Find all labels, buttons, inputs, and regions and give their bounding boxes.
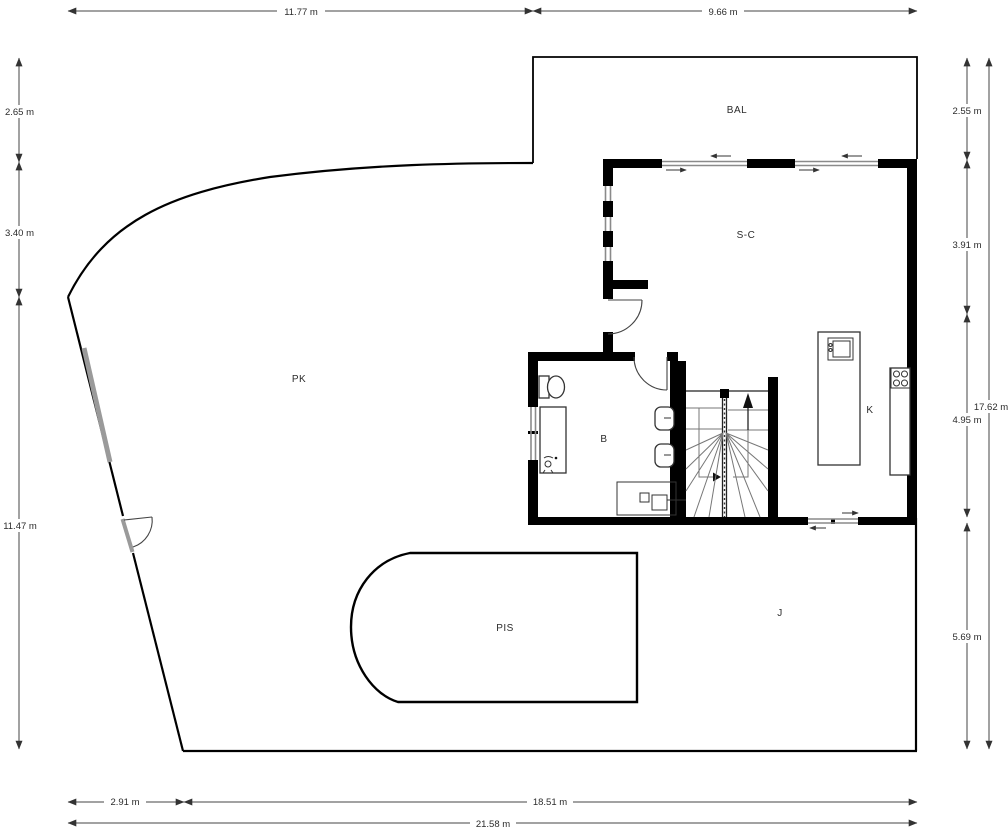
dim-label-top-right: 9.66 m: [708, 7, 737, 18]
stair-up-arrow-icon: [743, 393, 753, 408]
room-label-balcony: BAL: [727, 105, 747, 116]
plot-boundary: [68, 163, 917, 751]
dim-label-right-3: 4.95 m: [952, 415, 981, 426]
boundary-curve-top: [68, 163, 533, 297]
dim-label-bottom-total: 21.58 m: [476, 819, 510, 830]
gate-leaf-open: [124, 517, 152, 520]
shower-tray: [540, 407, 566, 473]
dim-label-left-bottom: 11.47 m: [3, 521, 37, 532]
dim-label-right-2: 3.91 m: [952, 240, 981, 251]
boundary-diagonal-lower: [133, 553, 183, 751]
dim-label-right-total: 17.62 m: [974, 402, 1008, 413]
pool-outline: [351, 553, 637, 702]
dim-label-bottom-gate: 2.91 m: [110, 797, 139, 808]
entrance-gate: [123, 517, 153, 552]
floorplan-canvas: 11.77 m 9.66 m 2.65 m 3.40 m 11.47 m 2.5…: [0, 0, 1008, 832]
doors: [608, 300, 667, 390]
kitchen-island: [818, 332, 860, 465]
room-label-bathroom: B: [600, 434, 607, 445]
gate-swing-arc: [133, 517, 152, 547]
fence-segment: [84, 348, 110, 462]
room-label-garden: J: [777, 608, 783, 619]
stair-walkline-right: [733, 410, 748, 477]
bathroom-fixtures: [539, 376, 686, 515]
bathroom-door-arc: [634, 357, 667, 390]
dim-label-bottom-main: 18.51 m: [533, 797, 567, 808]
living-room-door-arc: [608, 300, 642, 334]
floorplan-svg: 11.77 m 9.66 m 2.65 m 3.40 m 11.47 m 2.5…: [0, 0, 1008, 832]
gate-leaf-closed: [123, 519, 133, 552]
dim-label-right-4: 5.69 m: [952, 632, 981, 643]
room-labels: BAL S-C PK B K J PIS: [292, 105, 874, 634]
room-label-pool: PIS: [496, 623, 514, 634]
staircase: [686, 391, 768, 517]
dim-label-right-1: 2.55 m: [952, 106, 981, 117]
shower-drain-dot: [555, 457, 558, 460]
vanity-sink-large: [652, 495, 667, 510]
kitchen-fixtures: [818, 332, 910, 475]
toilet-bowl: [548, 376, 565, 398]
room-label-living: S-C: [737, 230, 756, 241]
dim-label-left-top: 2.65 m: [5, 107, 34, 118]
stair-treads-left: [686, 408, 722, 429]
room-label-kitchen: K: [866, 405, 873, 416]
stair-winder-fan-left: [686, 433, 723, 517]
balcony-outline: [533, 57, 917, 163]
stair-winder-fan-right: [726, 433, 768, 517]
stair-direction-arrow-icon: [713, 473, 721, 482]
dim-label-top-left: 11.77 m: [284, 7, 318, 18]
dim-label-left-mid: 3.40 m: [5, 228, 34, 239]
room-label-parking: PK: [292, 374, 306, 385]
vanity-sink-small: [640, 493, 649, 502]
